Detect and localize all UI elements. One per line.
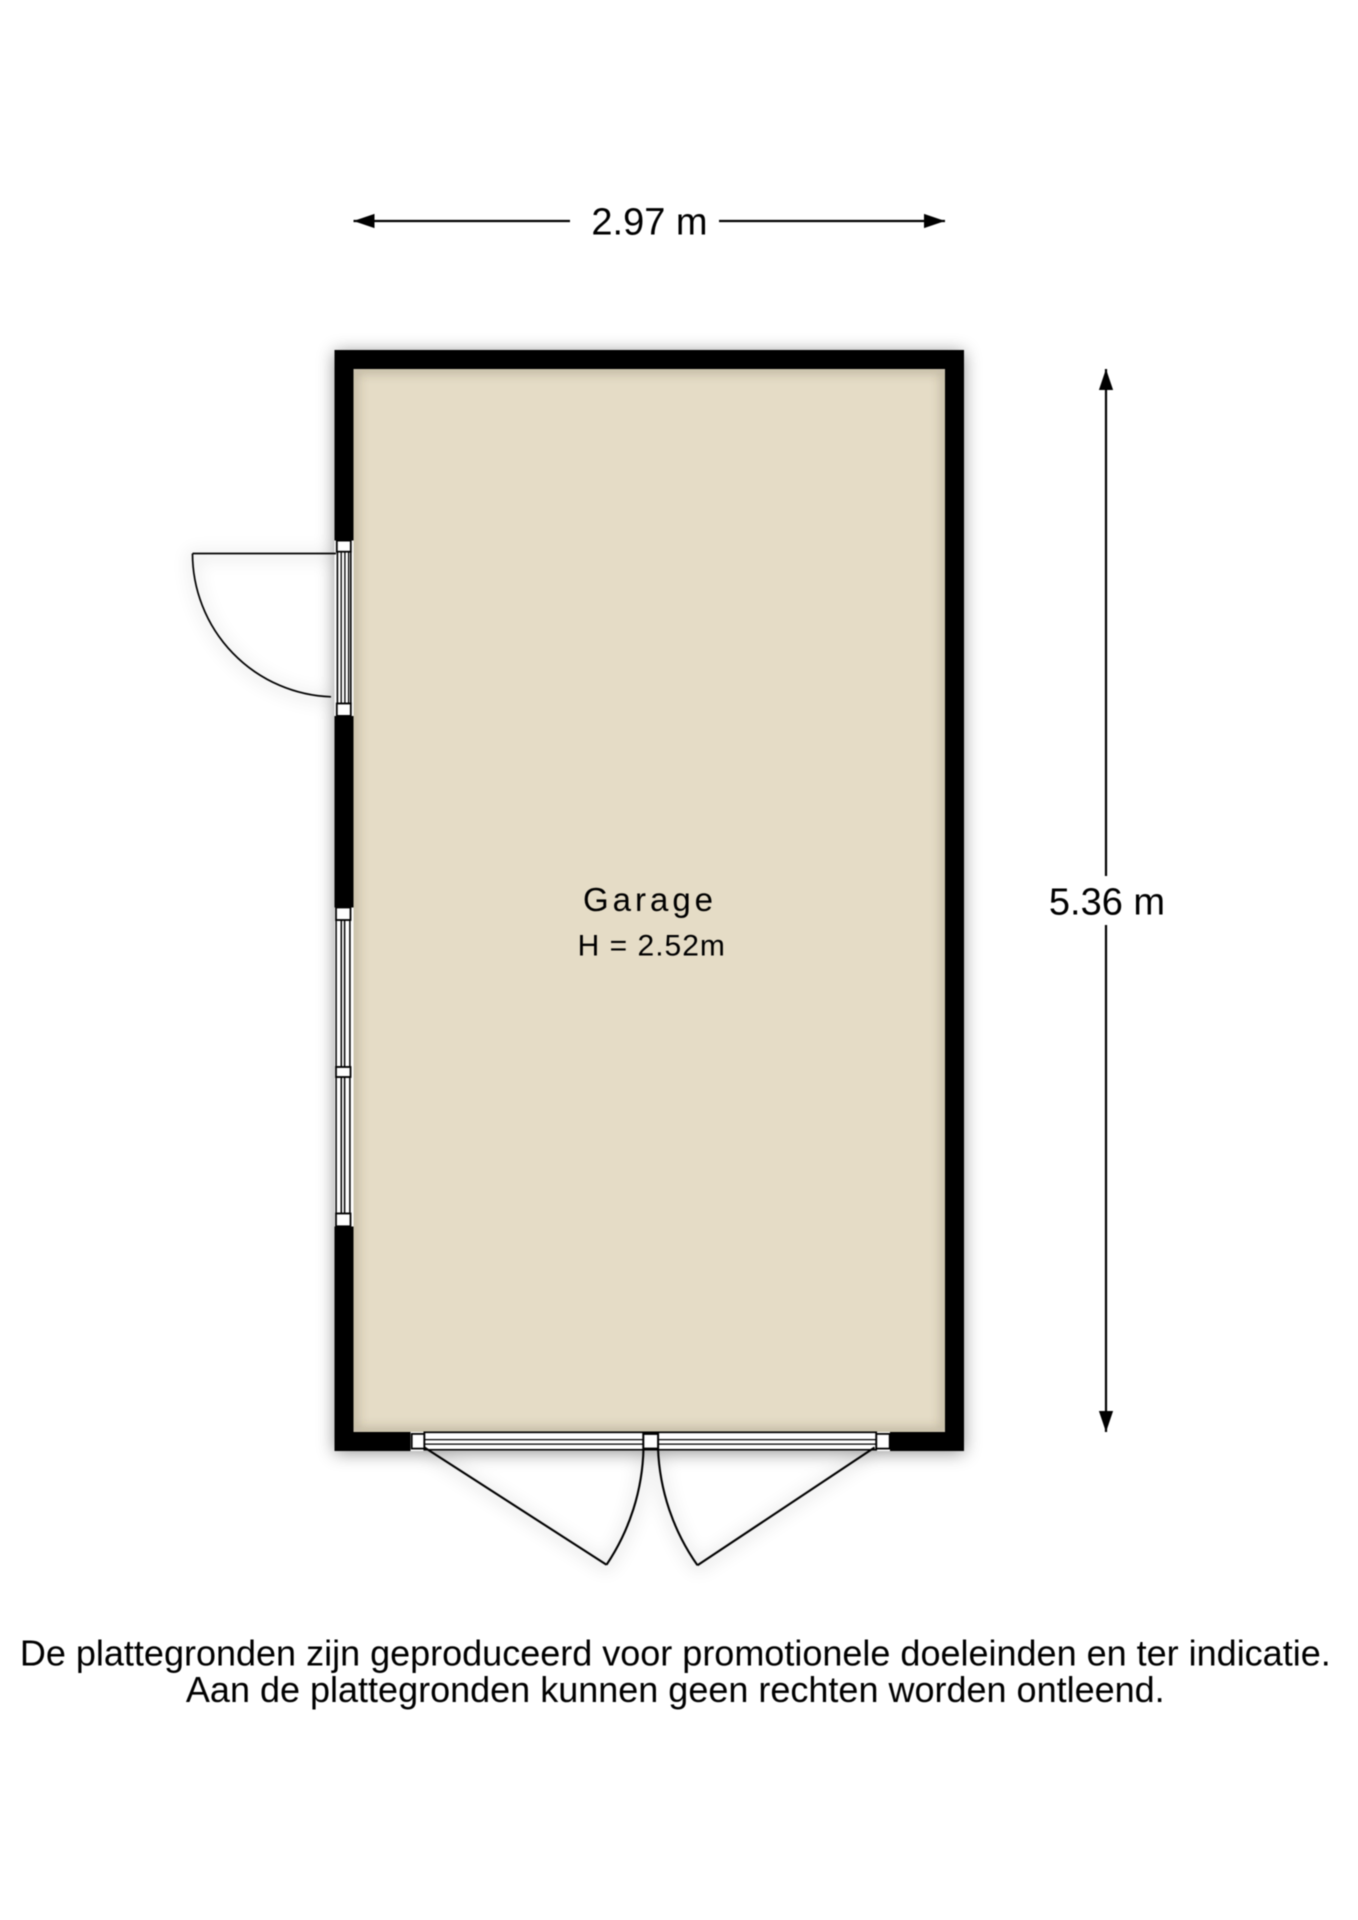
- svg-text:5.36 m: 5.36 m: [1049, 882, 1165, 924]
- svg-text:Garage: Garage: [583, 881, 717, 918]
- svg-text:H = 2.52m: H = 2.52m: [578, 929, 726, 962]
- svg-text:Aan de plattegronden kunnen ge: Aan de plattegronden kunnen geen rechten…: [186, 1669, 1165, 1710]
- svg-text:De plattegronden zijn geproduc: De plattegronden zijn geproduceerd voor …: [20, 1633, 1331, 1674]
- svg-text:2.97 m: 2.97 m: [591, 202, 707, 244]
